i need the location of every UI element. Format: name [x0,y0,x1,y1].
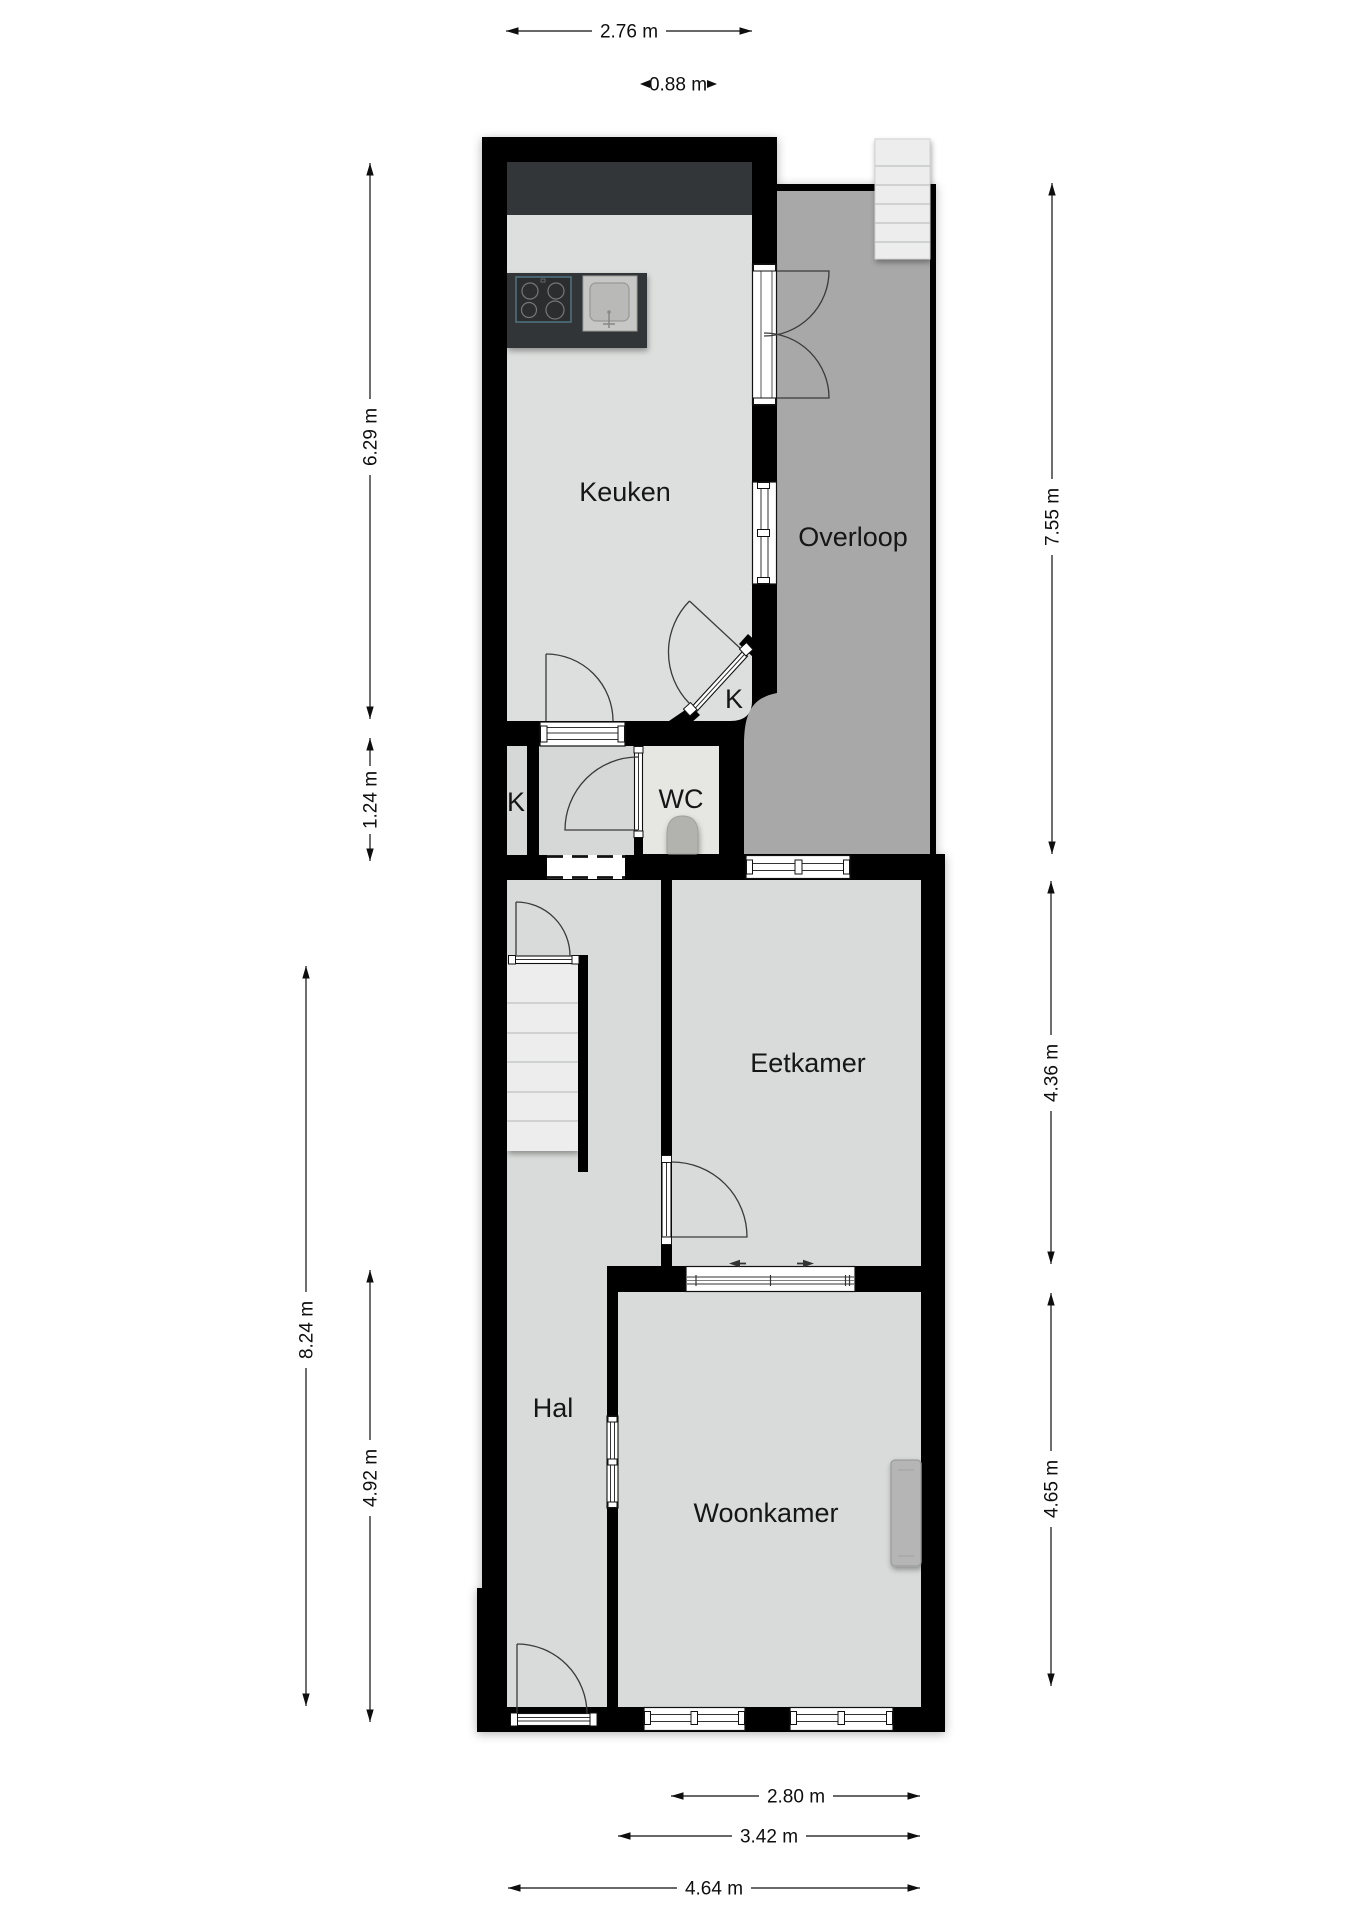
svg-text:6.29 m: 6.29 m [361,408,382,466]
svg-text:WC: WC [659,784,704,814]
svg-text:7.55 m: 7.55 m [1043,488,1064,546]
svg-text:Overloop: Overloop [798,522,908,552]
svg-text:2.76 m: 2.76 m [600,22,658,43]
svg-text:4.92 m: 4.92 m [361,1449,382,1507]
svg-text:4.64 m: 4.64 m [685,1879,743,1900]
svg-text:4.36 m: 4.36 m [1042,1044,1063,1102]
svg-text:Eetkamer: Eetkamer [750,1048,866,1078]
svg-text:2.80 m: 2.80 m [767,1787,825,1808]
svg-text:8.24 m: 8.24 m [297,1301,318,1359]
svg-text:4.65 m: 4.65 m [1042,1460,1063,1518]
svg-text:1.24 m: 1.24 m [361,771,382,829]
svg-text:3.42 m: 3.42 m [740,1827,798,1848]
svg-text:0.88 m: 0.88 m [649,75,707,96]
svg-text:K: K [725,684,743,714]
svg-text:Hal: Hal [533,1393,574,1423]
svg-text:Woonkamer: Woonkamer [693,1498,838,1528]
svg-text:Keuken: Keuken [579,477,671,507]
svg-text:K: K [507,787,525,817]
